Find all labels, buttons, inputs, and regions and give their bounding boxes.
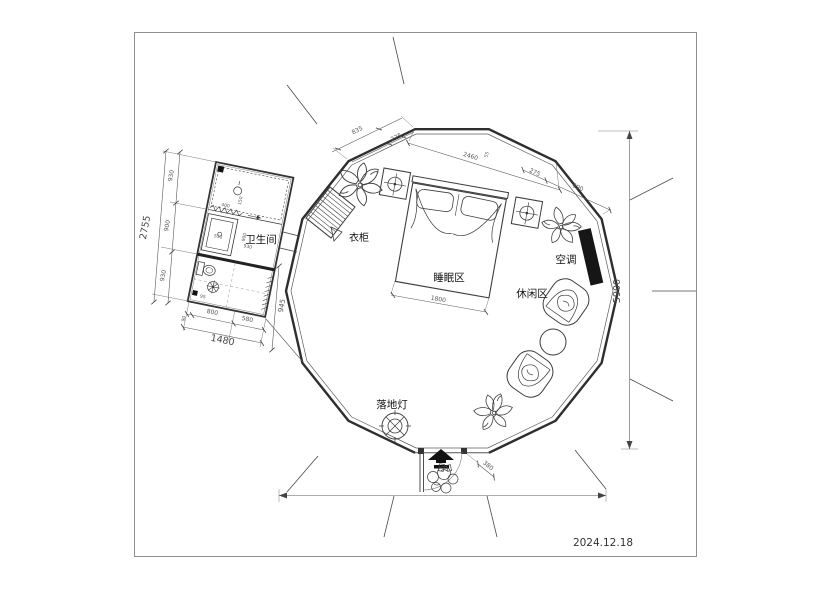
wardrobe-label: 衣柜 (349, 231, 369, 244)
floor-plan-page: 400 150 550 900 930 95 卫生间 2755 930 900 … (0, 0, 837, 592)
floor-lamp-label: 落地灯 (376, 398, 408, 411)
sleeping-area-label: 睡眠区 (433, 271, 465, 284)
dim-overall-height: 5900 (612, 279, 623, 303)
drain-marker (192, 290, 198, 296)
drawing-date: 2024.12.18 (573, 537, 633, 549)
ac-label: 空调 (556, 253, 577, 266)
leisure-area-label: 休闲区 (516, 287, 548, 300)
duct-marker (217, 166, 224, 173)
bathroom-label: 卫生间 (245, 233, 277, 246)
floor-plan-canvas: 400 150 550 900 930 95 卫生间 2755 930 900 … (0, 0, 837, 592)
